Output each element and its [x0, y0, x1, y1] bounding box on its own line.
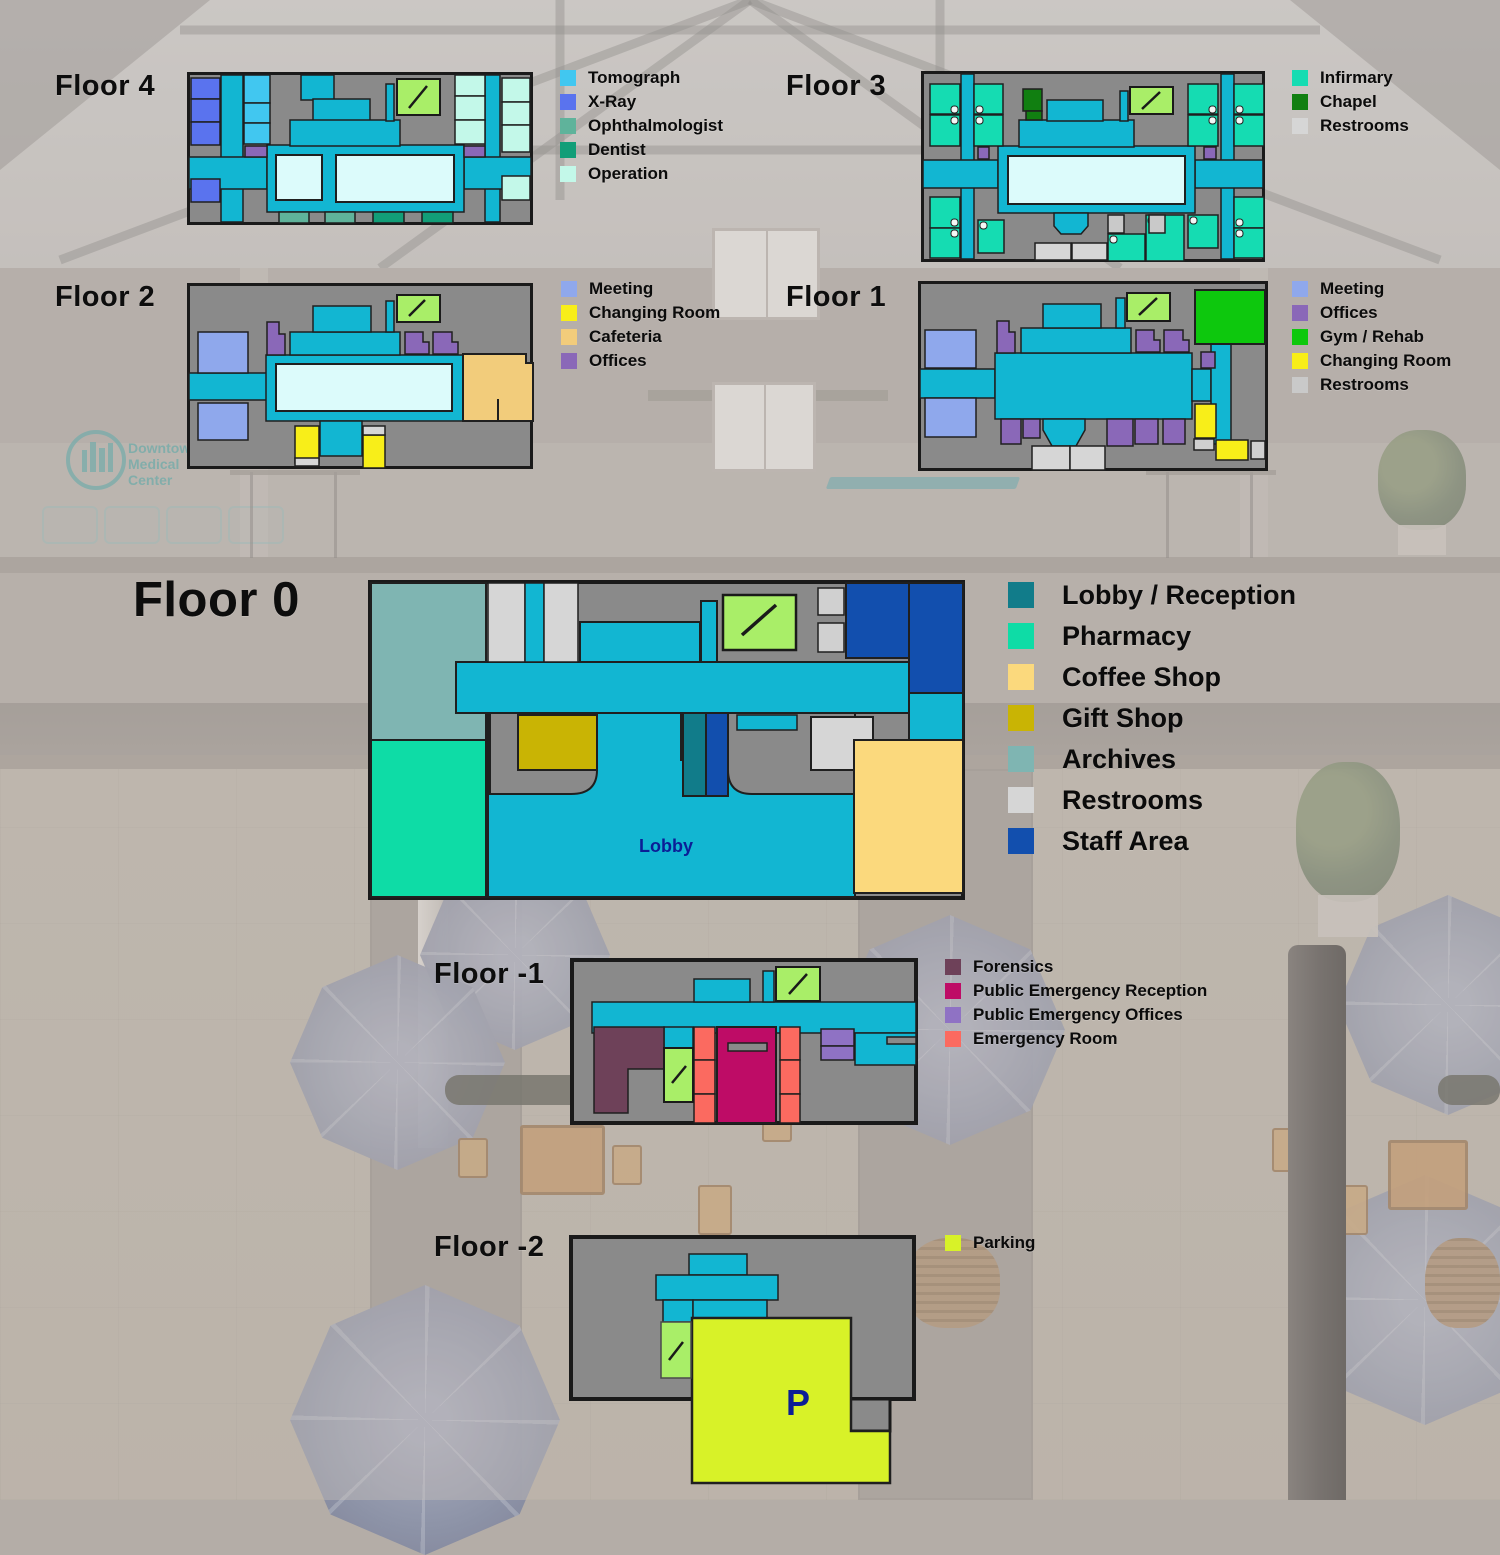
- legend-swatch: [1292, 70, 1308, 86]
- elevator-icon: [1127, 293, 1170, 321]
- parking-label: P: [786, 1382, 810, 1423]
- atrium-opening: [1008, 156, 1185, 204]
- legend-item: Restrooms: [1008, 787, 1296, 813]
- chapel-rooms: [1023, 89, 1042, 120]
- floor-4-label: Floor 4: [55, 70, 155, 103]
- reception-desk: [683, 713, 706, 796]
- utility: [818, 588, 844, 615]
- floor-minus-1-label: Floor -1: [434, 958, 544, 991]
- restroom-strip: [488, 583, 525, 662]
- floor-minus-2-label: Floor -2: [434, 1231, 544, 1264]
- legend-item: Infirmary: [1292, 70, 1409, 86]
- legend-item: Emergency Room: [945, 1031, 1207, 1047]
- pharmacy: [371, 740, 486, 897]
- legend-swatch: [561, 329, 577, 345]
- legend-item: Tomograph: [560, 70, 723, 86]
- floor-1-label: Floor 1: [786, 281, 886, 314]
- legend-item: Staff Area: [1008, 828, 1296, 854]
- legend-item: Chapel: [1292, 94, 1409, 110]
- gym-rehab: [1195, 290, 1265, 344]
- legend-swatch: [945, 1235, 961, 1251]
- legend-item: Changing Room: [1292, 353, 1451, 369]
- elevator-icon: [664, 1048, 693, 1102]
- floor-minus-2-map: P: [569, 1232, 917, 1484]
- legend-item: Gift Shop: [1008, 705, 1296, 731]
- legend-swatch: [1292, 94, 1308, 110]
- legend-swatch: [1292, 305, 1308, 321]
- elevator-icon: [397, 295, 440, 322]
- floor-minus-1-legend: Forensics Public Emergency Reception Pub…: [945, 959, 1207, 1047]
- public-emergency-reception: [717, 1027, 776, 1123]
- legend-swatch: [1292, 118, 1308, 134]
- operation-theaters: [276, 155, 454, 202]
- legend-swatch: [1008, 664, 1034, 690]
- elevator-icon: [776, 967, 820, 1001]
- reception-counter: [728, 1043, 767, 1051]
- floor-4-legend: Tomograph X-Ray Ophthalmologist Dentist …: [560, 70, 723, 182]
- legend-swatch: [1008, 746, 1034, 772]
- legend-swatch: [1292, 329, 1308, 345]
- legend-swatch: [560, 70, 576, 86]
- legend-item: Meeting: [561, 281, 720, 297]
- ramp-block: [849, 1399, 890, 1431]
- legend-swatch: [1008, 623, 1034, 649]
- legend-swatch: [561, 305, 577, 321]
- restroom-strip: [544, 583, 578, 662]
- lobby-label: Lobby: [639, 836, 693, 856]
- legend-swatch: [1008, 787, 1034, 813]
- legend-item: Forensics: [945, 959, 1207, 975]
- floor-2-map: [187, 283, 533, 469]
- tomograph-rooms: [244, 75, 270, 144]
- floor-1-legend: Meeting Offices Gym / Rehab Changing Roo…: [1292, 281, 1451, 393]
- legend-item: Archives: [1008, 746, 1296, 772]
- elevator-icon: [661, 1322, 691, 1378]
- xray-rooms: [191, 78, 220, 202]
- legend-item: Public Emergency Offices: [945, 1007, 1207, 1023]
- legend-item: Offices: [1292, 305, 1451, 321]
- restrooms: [1032, 446, 1105, 470]
- floor-3-legend: Infirmary Chapel Restrooms: [1292, 70, 1409, 134]
- restrooms: [1035, 243, 1107, 260]
- atrium-opening: [276, 364, 452, 411]
- legend-swatch: [1008, 582, 1034, 608]
- elevator-icon: [1130, 87, 1173, 114]
- legend-item: Parking: [945, 1235, 1035, 1251]
- legend-swatch: [945, 983, 961, 999]
- legend-item: Lobby / Reception: [1008, 582, 1296, 608]
- public-emergency-offices: [821, 1029, 854, 1060]
- legend-swatch: [1292, 377, 1308, 393]
- legend-item: Restrooms: [1292, 118, 1409, 134]
- legend-swatch: [945, 1007, 961, 1023]
- legend-swatch: [561, 281, 577, 297]
- legend-swatch: [1292, 281, 1308, 297]
- floor-0-map: Lobby: [368, 580, 965, 900]
- floor-0-label: Floor 0: [133, 572, 300, 628]
- legend-swatch: [1292, 353, 1308, 369]
- legend-item: Meeting: [1292, 281, 1451, 297]
- staff-area: [846, 583, 909, 658]
- legend-item: Ophthalmologist: [560, 118, 723, 134]
- legend-item: Gym / Rehab: [1292, 329, 1451, 345]
- legend-swatch: [945, 959, 961, 975]
- gift-shop: [518, 715, 597, 770]
- floor-2-legend: Meeting Changing Room Cafeteria Offices: [561, 281, 720, 369]
- legend-item: Operation: [560, 166, 723, 182]
- floor-2-label: Floor 2: [55, 281, 155, 314]
- staff-area: [909, 583, 963, 693]
- corridor-gap: [525, 583, 544, 662]
- door-slot: [887, 1037, 916, 1044]
- legend-item: Pharmacy: [1008, 623, 1296, 649]
- elevator-icon: [723, 595, 796, 650]
- floor-0-legend: Lobby / Reception Pharmacy Coffee Shop G…: [1008, 582, 1296, 854]
- utility: [818, 623, 844, 652]
- floor-3-label: Floor 3: [786, 70, 886, 103]
- legend-item: Public Emergency Reception: [945, 983, 1207, 999]
- legend-swatch: [560, 94, 576, 110]
- legend-item: Restrooms: [1292, 377, 1451, 393]
- legend-item: Offices: [561, 353, 720, 369]
- legend-swatch: [945, 1031, 961, 1047]
- legend-swatch: [561, 353, 577, 369]
- cafeteria: [463, 354, 533, 421]
- legend-item: Dentist: [560, 142, 723, 158]
- floor-3-map: [921, 71, 1265, 262]
- coffee-shop: [854, 740, 963, 893]
- legend-item: Cafeteria: [561, 329, 720, 345]
- floor-1-map: [918, 281, 1268, 471]
- legend-item: Changing Room: [561, 305, 720, 321]
- legend-swatch: [1008, 705, 1034, 731]
- floor-minus-1-map: [570, 958, 918, 1125]
- legend-swatch: [560, 166, 576, 182]
- legend-item: Coffee Shop: [1008, 664, 1296, 690]
- legend-item: X-Ray: [560, 94, 723, 110]
- legend-swatch: [1008, 828, 1034, 854]
- floor-4-map: [187, 72, 533, 225]
- staff-strip: [706, 713, 728, 796]
- floor-minus-2-legend: Parking: [945, 1235, 1035, 1251]
- elevator-icon: [397, 79, 440, 115]
- legend-swatch: [560, 142, 576, 158]
- legend-swatch: [560, 118, 576, 134]
